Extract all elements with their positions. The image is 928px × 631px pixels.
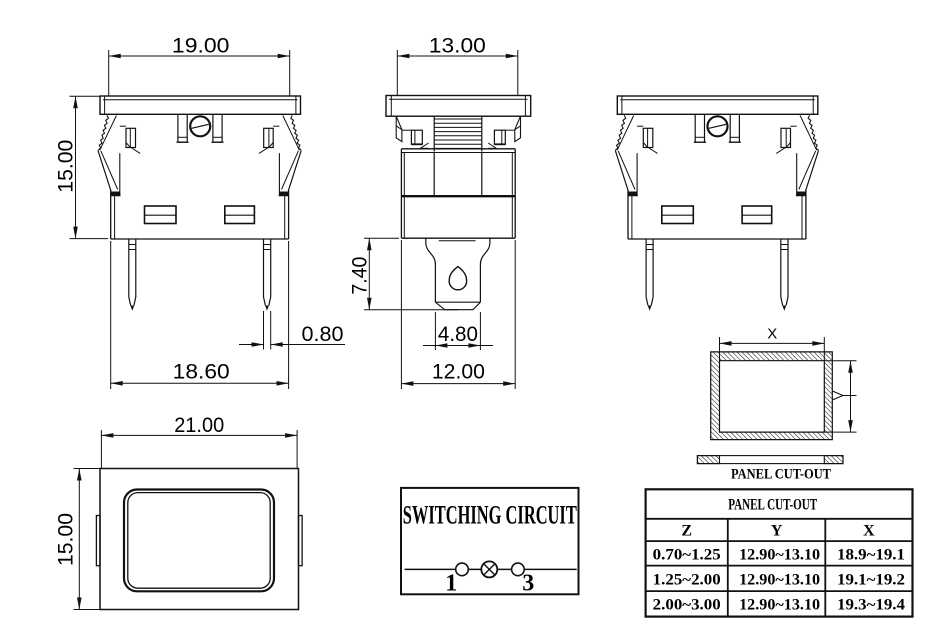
svg-text:19.00: 19.00 xyxy=(172,35,230,58)
svg-text:PANEL CUT-OUT: PANEL CUT-OUT xyxy=(731,467,831,483)
svg-text:0.70~1.25: 0.70~1.25 xyxy=(653,547,721,564)
svg-text:7.40: 7.40 xyxy=(349,257,372,295)
svg-text:Z: Z xyxy=(681,523,692,540)
svg-text:X: X xyxy=(863,523,875,540)
svg-text:19.1~19.2: 19.1~19.2 xyxy=(837,572,905,589)
svg-text:12.00: 12.00 xyxy=(432,361,485,384)
svg-text:2.00~3.00: 2.00~3.00 xyxy=(653,597,721,614)
svg-text:0.80: 0.80 xyxy=(302,323,344,346)
svg-text:4.80: 4.80 xyxy=(438,323,478,346)
svg-text:Y: Y xyxy=(771,523,783,540)
svg-text:1.25~2.00: 1.25~2.00 xyxy=(653,572,721,589)
svg-text:15.00: 15.00 xyxy=(54,140,77,193)
svg-text:3: 3 xyxy=(522,571,534,597)
svg-text:12.90~13.10: 12.90~13.10 xyxy=(739,547,820,564)
svg-text:19.3~19.4: 19.3~19.4 xyxy=(837,597,905,614)
svg-text:1: 1 xyxy=(445,571,457,597)
svg-text:X: X xyxy=(767,326,777,343)
svg-text:12.90~13.10: 12.90~13.10 xyxy=(739,572,820,589)
svg-text:15.00: 15.00 xyxy=(55,513,78,566)
svg-text:13.00: 13.00 xyxy=(429,35,486,58)
svg-text:18.60: 18.60 xyxy=(173,361,230,384)
svg-text:12.90~13.10: 12.90~13.10 xyxy=(739,597,820,614)
svg-text:PANEL CUT-OUT: PANEL CUT-OUT xyxy=(728,497,817,514)
svg-text:18.9~19.1: 18.9~19.1 xyxy=(837,547,905,564)
svg-text:SWITCHING CIRCUIT: SWITCHING CIRCUIT xyxy=(403,501,577,530)
svg-text:21.00: 21.00 xyxy=(174,414,224,437)
